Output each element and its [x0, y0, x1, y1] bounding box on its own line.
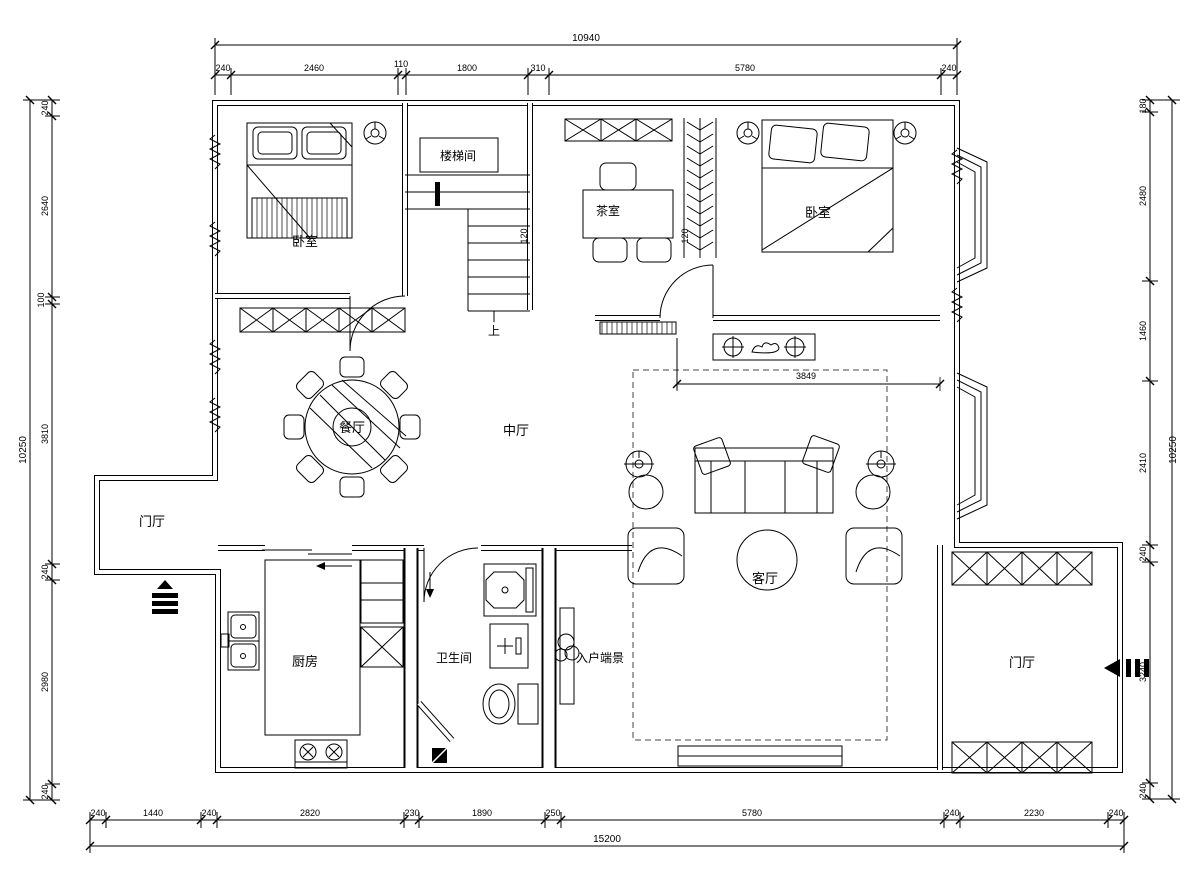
dim-left-total: 10250 [18, 436, 29, 464]
dim-wall-a: 120 [519, 228, 529, 243]
dim-bottom-seg: 1890 [472, 808, 492, 818]
label-dining: 餐厅 [339, 420, 365, 435]
ceiling-lamp-icon [364, 122, 386, 144]
dim-bottom: 15200 240 1440 240 2820 230 1890 250 578… [86, 808, 1128, 853]
dim-left: 10250 240 2640 100 3810 240 2980 240 [18, 96, 60, 804]
entry-steps-left [152, 580, 178, 614]
label-entry-vista: 入户端景 [576, 650, 624, 665]
sofa [695, 448, 833, 513]
armchair-left [628, 528, 684, 584]
dim-right-total: 10250 [1168, 436, 1179, 464]
door-arc-bathroom [424, 548, 478, 602]
label-stair-up: 上 [488, 324, 500, 338]
dim-bottom-seg: 250 [545, 808, 560, 818]
dim-bottom-seg: 2230 [1024, 808, 1044, 818]
dim-bottom-seg: 230 [404, 808, 419, 818]
door-arc-bedroom-left [350, 296, 405, 351]
door-arc-bedroom-right [660, 265, 713, 318]
stove [295, 740, 347, 768]
label-bedroom-right: 卧室 [805, 205, 831, 220]
label-tea-room: 茶室 [596, 203, 620, 218]
dim-right-seg: 240 [1138, 783, 1148, 798]
label-kitchen: 厨房 [292, 654, 318, 669]
dim-bottom-seg: 240 [944, 808, 959, 818]
carpet-outline [633, 370, 887, 740]
label-bathroom: 卫生间 [436, 651, 472, 665]
dim-top-seg: 110 [394, 59, 408, 69]
label-bedroom-left: 卧室 [292, 234, 318, 249]
label-central-hall: 中厅 [503, 423, 529, 438]
dim-bottom-seg: 5780 [742, 808, 762, 818]
dim-top-seg: 310 [530, 63, 545, 73]
dim-top-seg: 2460 [304, 63, 324, 73]
dim-top-seg: 240 [941, 63, 956, 73]
dim-right-seg: 2410 [1138, 453, 1148, 473]
dim-bottom-seg: 240 [1108, 808, 1123, 818]
dim-right-seg: 2480 [1138, 186, 1148, 206]
window-marks [210, 135, 962, 432]
dim-top-seg: 5780 [735, 63, 755, 73]
floor-plan-canvas: 卧室 楼梯间 茶室 卧室 餐厅 中厅 门厅 客厅 厨房 卫生间 入户端景 门厅 … [0, 0, 1200, 880]
dim-bottom-seg: 1440 [143, 808, 163, 818]
bay-windows [957, 148, 987, 519]
kitchen-sliding-door [262, 550, 352, 554]
dim-left-seg: 240 [40, 564, 50, 579]
label-stairwell: 楼梯间 [440, 148, 476, 163]
dim-left-seg: 3810 [40, 424, 50, 444]
toilet-tank [518, 684, 538, 724]
dim-right-seg: 180 [1138, 98, 1148, 113]
stair-newel [435, 182, 440, 206]
armchair-right [846, 528, 902, 584]
dim-left-seg: 2980 [40, 672, 50, 692]
closet-bands [240, 119, 1092, 773]
bed-right [737, 120, 916, 252]
interior-dims: 3849 120 120 [519, 228, 944, 391]
dim-bottom-total: 15200 [593, 834, 621, 845]
dim-right-seg: 1460 [1138, 321, 1148, 341]
sideboard [713, 334, 815, 360]
living-furniture [624, 370, 902, 766]
dim-top-seg: 240 [215, 63, 230, 73]
dim-left-seg: 100 [36, 292, 46, 307]
stairs [405, 138, 530, 322]
dim-living-width: 3849 [796, 371, 816, 381]
dim-left-seg: 240 [40, 100, 50, 115]
dim-bottom-seg: 240 [201, 808, 216, 818]
dim-bottom-seg: 2820 [300, 808, 320, 818]
dim-top-total: 10940 [572, 33, 600, 44]
dim-top: 10940 240 2460 110 1800 310 5780 240 [211, 33, 961, 95]
label-living: 客厅 [752, 571, 778, 586]
label-foyer-left: 门厅 [139, 514, 165, 529]
dim-right-seg: 240 [1138, 546, 1148, 561]
dim-right: 10250 180 2480 1460 2410 240 3240 240 [1138, 96, 1180, 803]
dim-bottom-seg: 240 [90, 808, 105, 818]
dim-top-seg: 1800 [457, 63, 477, 73]
bed-left [247, 123, 352, 238]
dim-right-seg: 3240 [1138, 662, 1148, 682]
dim-left-seg: 2640 [40, 196, 50, 216]
label-foyer-right: 门厅 [1009, 655, 1035, 670]
dim-left-seg: 240 [40, 784, 50, 799]
kitchen-island [265, 560, 360, 735]
floor-plan-svg: 卧室 楼梯间 茶室 卧室 餐厅 中厅 门厅 客厅 厨房 卫生间 入户端景 门厅 … [0, 0, 1200, 880]
dim-wall-b: 120 [680, 228, 690, 243]
